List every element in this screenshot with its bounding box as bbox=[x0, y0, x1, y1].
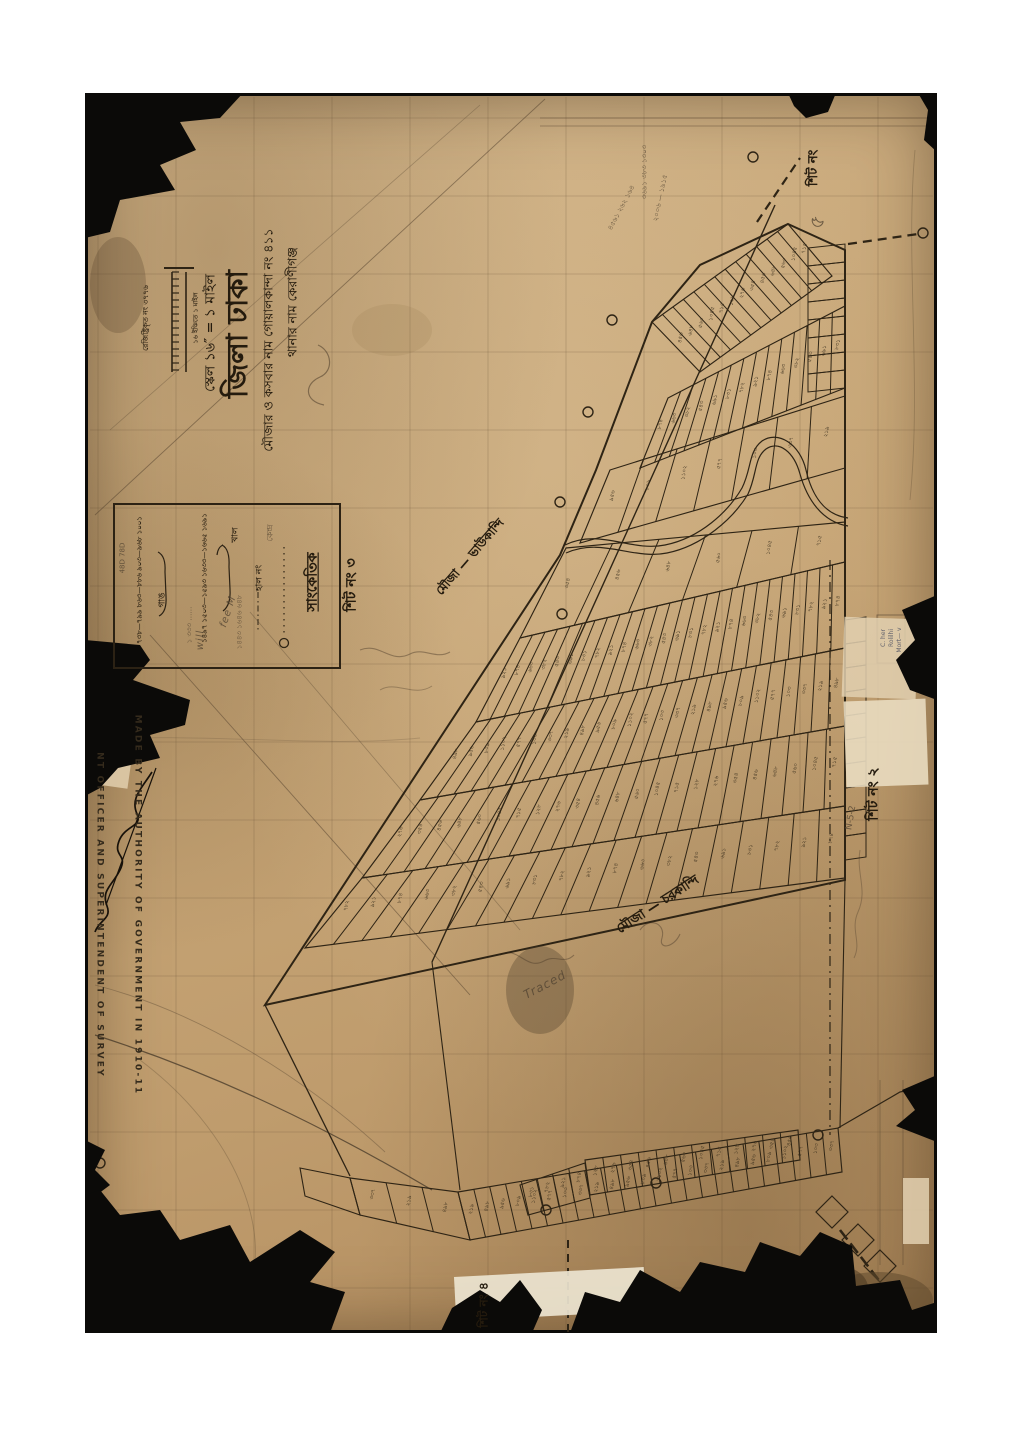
plot-number: ৮৩১ bbox=[531, 873, 539, 885]
plot-number: ১০৪৫ bbox=[654, 781, 662, 797]
plot-number: ৩৮২ bbox=[754, 612, 762, 624]
plot-number: ৩৫৪ bbox=[417, 823, 425, 835]
plot-number: ২৭৬ bbox=[713, 775, 721, 787]
plot-number: ৪৯৮ bbox=[484, 1200, 492, 1212]
plot-number: ৫৬০ bbox=[792, 762, 800, 774]
plot-strip bbox=[802, 571, 807, 657]
sheet-label-center: শিট নং ৩ bbox=[345, 558, 360, 611]
plot-number: ৫৬০ bbox=[780, 257, 788, 269]
tape-patch bbox=[903, 1178, 929, 1244]
pencil-scribble bbox=[854, 850, 862, 958]
plot-strip bbox=[746, 582, 758, 667]
plot-number: ১০৪৫ bbox=[698, 1145, 706, 1161]
plot-number: ৯২১ bbox=[752, 375, 760, 387]
survey-station-marker bbox=[555, 497, 565, 507]
plot-strip bbox=[574, 544, 612, 626]
plot-number: ৮৭৪ bbox=[576, 1171, 584, 1183]
plot-number: ৬৯১ bbox=[781, 606, 789, 618]
plot-number: ৮৩১ bbox=[747, 843, 755, 855]
plot-number: ৭১৫ bbox=[515, 807, 523, 819]
plot-number: ৭৮২ bbox=[774, 840, 782, 852]
map-canvas: ৪৫৬৬৪৮৫৬০১০৪৫৭১৫১২৮২৭৬৩৫৪৪৫৬৬৪৮৫৬০১০৪৫৭১… bbox=[0, 0, 1024, 1447]
plot-strip bbox=[761, 739, 771, 819]
plot-number: ৫৬০ bbox=[698, 317, 706, 329]
plot-strip bbox=[788, 814, 794, 886]
plot-strip bbox=[772, 339, 782, 417]
plot-number: ৭১৫ bbox=[718, 302, 726, 314]
plot-number: ২১৯ bbox=[719, 1159, 727, 1171]
plot-number: ১২৮ bbox=[733, 1143, 741, 1155]
plot-number: ৭১৫ bbox=[673, 781, 681, 793]
boundary-line bbox=[840, 880, 845, 1128]
plot-number: ৬৯১ bbox=[711, 394, 719, 406]
plot-number: ৫৪৩ bbox=[661, 632, 669, 644]
legend-current-no-label: হাল নং bbox=[255, 565, 264, 591]
plot-strip bbox=[698, 749, 716, 828]
plot-number: ৮৭৪ bbox=[828, 832, 836, 844]
plot-number: ১০৩ bbox=[813, 1142, 821, 1154]
plot-strip bbox=[474, 1189, 486, 1237]
plot-number: ১১০২ bbox=[627, 712, 635, 728]
plot-number: ৯৫৬ bbox=[468, 745, 476, 757]
plot-strip bbox=[677, 752, 697, 831]
plot-strip bbox=[777, 660, 786, 738]
plot-number: ৩৫৪ bbox=[575, 797, 583, 809]
plot-number: ৮০৯ bbox=[611, 718, 619, 730]
plot-strip bbox=[760, 663, 771, 741]
plot-number: ৮৭৪ bbox=[621, 641, 629, 653]
plot-strip bbox=[726, 669, 742, 747]
plot-strip bbox=[603, 1158, 608, 1193]
plot-number: ২৭৬ bbox=[610, 1162, 618, 1174]
plot-number: ৩৩৭ bbox=[703, 1162, 711, 1174]
plot-number: ৪৯৮ bbox=[579, 724, 587, 736]
plot-number: ১১০২ bbox=[500, 735, 508, 751]
plot-number: ৪৫৬ bbox=[752, 769, 760, 781]
plot-number: ৪৯৮ bbox=[442, 1201, 450, 1213]
plot-strip bbox=[703, 825, 718, 896]
plot-number: ৮৩১ bbox=[725, 388, 733, 400]
stamp-line-1: MADE BY THE AUTHORITY OF GOVERNMENT IN 1… bbox=[132, 715, 141, 1096]
plot-strip bbox=[553, 1174, 560, 1207]
plot-number: ৮৩১ bbox=[688, 627, 696, 639]
crease-line bbox=[910, 150, 915, 500]
plot-number: ৮৭৪ bbox=[612, 862, 620, 874]
plot-strip bbox=[786, 332, 794, 411]
title-district: জিলা ঢাকা bbox=[222, 270, 252, 398]
pencil-legend-note-2: ১ ৩৩৩ …… bbox=[186, 607, 193, 644]
tape-patch bbox=[844, 699, 929, 788]
plot-number: ৫৭৭ bbox=[643, 712, 651, 724]
survey-station-marker bbox=[557, 609, 567, 619]
plot-strip bbox=[618, 459, 644, 532]
plot-number: ৯৫৬ bbox=[625, 1175, 633, 1187]
plot-number: ৮৭৪ bbox=[766, 369, 774, 381]
plot-number: ৯২১ bbox=[501, 667, 509, 679]
plot-strip bbox=[616, 1165, 625, 1211]
plot-number: ৩৫৪ bbox=[628, 1159, 636, 1171]
plot-number: ৮৭৪ bbox=[728, 618, 736, 630]
plot-number: ৯৫৬ bbox=[609, 490, 617, 502]
plot-strip bbox=[740, 742, 753, 822]
plot-number: ৭১৫ bbox=[716, 1146, 724, 1158]
plot-number: ৭১৫ bbox=[831, 756, 839, 768]
plot-number: ১০৪৫ bbox=[811, 756, 819, 772]
plot-number: ৮০৯ bbox=[645, 479, 653, 491]
plot-strip bbox=[774, 577, 782, 663]
plot-number: ৫৬০ bbox=[680, 1151, 688, 1163]
plot-number: ৭৮২ bbox=[343, 899, 351, 911]
legend-group-b-numbers: ১৪৯৭ ১৫০৩—১৫৯৩ ১৬৩৩—১৬৬৫ ১৬৯১ bbox=[201, 513, 208, 643]
plot-number: ১০৩ bbox=[531, 733, 539, 745]
plot-number: ৬৪৮ bbox=[665, 560, 673, 572]
sheet-label-bottom: শিট নং ৪ bbox=[478, 1282, 491, 1328]
plot-number: ৩৩৭ bbox=[674, 706, 682, 718]
pencil-calc-1: ৩৬৯১ ৩৮৩ ১৩০৩ bbox=[641, 145, 648, 199]
plot-strip bbox=[467, 784, 512, 862]
plot-number: ৬৯১ bbox=[567, 652, 575, 664]
plot-number: ১০৩ bbox=[658, 709, 666, 721]
plot-number: ৯২১ bbox=[801, 836, 809, 848]
plot-number: ৮৩১ bbox=[581, 650, 589, 662]
registration-note: রেজিষ্ট্রিকৃত নং ৩৭৭৬ bbox=[142, 285, 150, 351]
plot-number: ১০৪৫ bbox=[791, 246, 799, 262]
plot-number: ১০৩ bbox=[752, 447, 760, 459]
plot-number: ৩৮২ bbox=[541, 658, 549, 670]
plot-number: ৯৫৬ bbox=[722, 698, 730, 710]
plot-number: ৮৭৪ bbox=[397, 892, 405, 904]
plot-number: ৬৬৩ bbox=[741, 615, 749, 627]
stain bbox=[352, 304, 432, 356]
legend-title: সাংকেতিক bbox=[306, 552, 321, 611]
plot-number: ৪৫৬ bbox=[615, 569, 623, 581]
plot-strip bbox=[727, 1140, 730, 1172]
sheet-label-right: শিট নং ২ bbox=[867, 767, 882, 820]
plot-strip bbox=[803, 732, 808, 812]
plot-number: ৬৬৩ bbox=[424, 888, 432, 900]
plot-number: ১০৪৫ bbox=[766, 540, 774, 556]
survey-station-marker bbox=[748, 152, 758, 162]
plot-number: ২১৯ bbox=[468, 1203, 476, 1215]
plot-strip bbox=[561, 844, 591, 915]
pencil-cursive-1: will bbox=[196, 630, 207, 651]
plot-number: ৪৯৮ bbox=[734, 1156, 742, 1168]
plot-number: ৮০৯ bbox=[766, 1151, 774, 1163]
plot-number: ৫৬০ bbox=[634, 788, 642, 800]
plot-number: ৩৫৪ bbox=[732, 772, 740, 784]
plot-number: ৭৮২ bbox=[739, 381, 747, 393]
plot-number: ৪৯৮ bbox=[609, 1178, 617, 1190]
plot-number: ৫৪৩ bbox=[554, 655, 562, 667]
pencil-legend-note-3: 48D 78D bbox=[119, 543, 126, 574]
plot-strip bbox=[731, 821, 743, 893]
plot-strip bbox=[782, 736, 790, 816]
plot-strip bbox=[618, 836, 642, 907]
torn-edge bbox=[788, 93, 836, 118]
khal-line bbox=[565, 437, 848, 546]
plot-number: ৭৮২ bbox=[558, 870, 566, 882]
plot-number: ৫৪৩ bbox=[478, 881, 486, 893]
plot-strip bbox=[817, 568, 820, 654]
plot-number: ১২৮ bbox=[535, 804, 543, 816]
plot-number: ৯৫৬ bbox=[750, 1153, 758, 1165]
plot-number: ২৭৬ bbox=[555, 800, 563, 812]
plot-number: ৫৭৭ bbox=[672, 1167, 680, 1179]
plot-number: ৫৭৭ bbox=[716, 458, 724, 470]
plot-number: ৫৭৭ bbox=[797, 1145, 805, 1157]
plot-number: ৯২১ bbox=[560, 1176, 568, 1188]
plot-number: ৪৫৬ bbox=[645, 1156, 653, 1168]
plot-number: ৬৬৩ bbox=[634, 638, 642, 650]
plot-number: ২১৯ bbox=[823, 426, 831, 438]
plot-number: ৩৩৭ bbox=[828, 1140, 836, 1152]
plot-strip bbox=[817, 810, 820, 882]
plot-number: ৩৩৭ bbox=[578, 1184, 586, 1196]
stamp-box-line-3: Mort— v bbox=[897, 627, 903, 652]
plot-strip bbox=[386, 1183, 397, 1224]
river-curve bbox=[95, 1035, 432, 1190]
plot-number: ৬৯১ bbox=[720, 847, 728, 859]
title-scale: স্কেল ১৬″ = ১ মাইল bbox=[204, 274, 219, 392]
legend-group-b-label: খাল bbox=[231, 527, 240, 542]
plot-strip bbox=[763, 1135, 766, 1166]
plot-number: ৩৩৭ bbox=[369, 1188, 377, 1200]
plot-number: ১২৮ bbox=[592, 1164, 600, 1176]
boundary-line bbox=[265, 1005, 350, 1176]
plot-diamond bbox=[816, 1196, 848, 1228]
plot-strip bbox=[683, 535, 706, 600]
plot-number: ৮৩১ bbox=[794, 603, 802, 615]
plot-number: ৫৭৭ bbox=[770, 689, 778, 701]
plot-number: ৩৮২ bbox=[648, 635, 656, 647]
plot-number: ৯৫৬ bbox=[595, 721, 603, 733]
plot-number: ৩৩৭ bbox=[801, 683, 809, 695]
survey-station-marker bbox=[607, 315, 617, 325]
plot-number: ৬৪৮ bbox=[663, 1154, 671, 1166]
plot-strip bbox=[454, 716, 506, 794]
plot-band bbox=[300, 1168, 360, 1215]
plot-number: ৮৭৪ bbox=[834, 595, 842, 607]
plot-number: ৬৬৩ bbox=[527, 661, 535, 673]
plot-number: ৩৮২ bbox=[684, 406, 692, 418]
plot-number: ৬৯১ bbox=[674, 629, 682, 641]
plot-number: ৪৫৬ bbox=[760, 272, 768, 284]
plot-number: ২৭৬ bbox=[751, 1140, 759, 1152]
plot-strip bbox=[760, 817, 769, 889]
plot-number: ১১০২ bbox=[754, 688, 762, 704]
torn-edge bbox=[85, 1190, 345, 1333]
plot-number: ৫৬০ bbox=[476, 813, 484, 825]
stamp-box-line-2: Rolilhi bbox=[889, 629, 895, 647]
plot-number: ৫৪৩ bbox=[698, 400, 706, 412]
scale-bar-note: ১৬ ইঞ্চিতে ১ মাইল bbox=[193, 293, 200, 344]
plot-number: ২১৯ bbox=[563, 727, 571, 739]
plot-strip bbox=[775, 1139, 780, 1184]
plot-strip bbox=[769, 417, 778, 489]
plot-number: ৯২১ bbox=[821, 598, 829, 610]
plot-strip bbox=[806, 1133, 811, 1177]
plot-number: ৪৯৮ bbox=[452, 748, 460, 760]
plot-strip bbox=[757, 345, 769, 422]
plot-number: ৫৭৭ bbox=[516, 736, 524, 748]
plot-number: ৬৪৮ bbox=[456, 816, 464, 828]
plot-number: ৯২১ bbox=[370, 896, 378, 908]
plot-number: ২১৯ bbox=[817, 680, 825, 692]
plot-number: ৪৯৮ bbox=[833, 677, 841, 689]
plot-number: ১০৩ bbox=[785, 686, 793, 698]
plot-band bbox=[458, 1128, 842, 1240]
survey-station-marker bbox=[918, 228, 928, 238]
plot-number: ৮৭৪ bbox=[657, 418, 665, 430]
plot-strip bbox=[709, 1143, 712, 1175]
title-thana: থানার নাম কেরাণীগঞ্জ bbox=[285, 247, 298, 357]
plot-number: ৩৮২ bbox=[666, 855, 674, 867]
legend-station-label: কেন্দ্র bbox=[266, 524, 275, 541]
plot-strip bbox=[788, 574, 795, 660]
plot-number: ৩৮২ bbox=[451, 885, 459, 897]
plot-number: ২১৯ bbox=[690, 703, 698, 715]
plot-strip bbox=[719, 745, 734, 824]
plot-strip bbox=[731, 428, 744, 500]
plot-number: ৬৯১ bbox=[505, 877, 513, 889]
plot-number: ৮০৯ bbox=[484, 742, 492, 754]
plot-number: ২১৯ bbox=[593, 1181, 601, 1193]
plot-strip bbox=[490, 635, 532, 719]
plot-strip bbox=[811, 654, 815, 732]
plot-number: ৩৫৪ bbox=[749, 279, 757, 291]
plot-number: ৯২১ bbox=[714, 621, 722, 633]
plot-number: ১১০২ bbox=[680, 465, 688, 481]
plot-number: ৫৪৩ bbox=[768, 609, 776, 621]
plot-number: ১২৮ bbox=[729, 294, 737, 306]
plot-strip bbox=[383, 797, 438, 875]
legend-group-a-numbers: ৭৩৮—৭৯৯ ৮৬৩—৮৮৬ ৯০৩—৯৬৮ ১০০১ bbox=[136, 516, 143, 644]
plot-strip bbox=[333, 874, 387, 944]
plot-number: ২৭৬ bbox=[397, 826, 405, 838]
plot-small bbox=[808, 370, 845, 392]
pencil-scribble bbox=[380, 686, 432, 690]
plot-strip bbox=[569, 1169, 575, 1203]
plot-strip bbox=[519, 629, 558, 713]
torn-edge bbox=[918, 93, 937, 152]
dashed-boundary bbox=[848, 234, 918, 244]
plot-strip bbox=[490, 1187, 501, 1235]
pencil-scribble bbox=[640, 923, 680, 946]
plot-number: ১০৪৫ bbox=[708, 306, 716, 322]
plot-number: ৮৭৪ bbox=[514, 664, 522, 676]
plot-strip bbox=[816, 319, 820, 399]
plot-strip bbox=[506, 1184, 517, 1232]
plot-number: ৭১৫ bbox=[816, 535, 824, 547]
plot-number: ৯২১ bbox=[608, 644, 616, 656]
plot-strip bbox=[589, 840, 616, 911]
plot-number: ৬৪৮ bbox=[772, 765, 780, 777]
stamp-box-line-1: C. her bbox=[881, 629, 887, 647]
plot-number: ৬৪৮ bbox=[770, 264, 778, 276]
boundary-line bbox=[432, 962, 460, 1190]
plot-number: ৮৩১ bbox=[834, 338, 842, 350]
pencil-scribble bbox=[360, 648, 450, 656]
plot-number: ৯২১ bbox=[585, 866, 593, 878]
plot-number: ৬৬৩ bbox=[639, 858, 647, 870]
torn-edge bbox=[85, 93, 243, 238]
plot-number: ৫৪৩ bbox=[693, 851, 701, 863]
plot-number: ৪৫৬ bbox=[436, 819, 444, 831]
plot-strip bbox=[504, 632, 545, 716]
stamp-line-2: NT OFFICER AND SUPERINTENDENT OF SURVEY bbox=[94, 752, 103, 1078]
plot-number: ৪৫৬ bbox=[786, 1135, 794, 1147]
plot-strip bbox=[621, 1155, 626, 1189]
plot-number: ৬৪৮ bbox=[614, 791, 622, 803]
plot-number: ৪৯৮ bbox=[706, 700, 714, 712]
plot-number: ২৭৬ bbox=[739, 287, 747, 299]
stain bbox=[90, 237, 146, 333]
plot-number: ৮০৯ bbox=[515, 1195, 523, 1207]
sheet-label-top-right: শিট নং bbox=[807, 150, 821, 186]
plot-band bbox=[305, 806, 845, 948]
plot-number: ৩৫৪ bbox=[564, 577, 572, 589]
signature-underline bbox=[106, 768, 156, 905]
plot-strip bbox=[824, 729, 827, 809]
plot-number: ৯৫৬ bbox=[499, 1197, 507, 1209]
scanned-map-page: { "title_block": { "thana_line": "থানার … bbox=[0, 0, 1024, 1447]
plot-number: ৪৫৬ bbox=[594, 794, 602, 806]
plot-number: ২১৯ bbox=[406, 1195, 414, 1207]
plot-strip bbox=[760, 580, 770, 666]
plot-number: ৭৮২ bbox=[594, 647, 602, 659]
plot-strip bbox=[831, 565, 833, 651]
title-mouza: মৌজার ও কসবার নাম গোয়ালকান্দা নং ৪১১ bbox=[261, 228, 274, 451]
plot-strip bbox=[807, 407, 811, 479]
plot-number: ৮০৯ bbox=[738, 695, 746, 707]
plot-number: ৭৮২ bbox=[808, 601, 816, 613]
plot-strip bbox=[801, 326, 807, 405]
plot-number: ৭৮২ bbox=[701, 624, 709, 636]
plot-small bbox=[845, 833, 866, 860]
plot-number: ৬৬৩ bbox=[780, 363, 788, 375]
plot-strip bbox=[791, 526, 799, 574]
plot-number: ৩৩৭ bbox=[547, 730, 555, 742]
plot-strip bbox=[422, 1187, 433, 1231]
plot-strip bbox=[505, 707, 550, 785]
plot-band bbox=[580, 396, 845, 543]
legend-group-a-label: গাঙ bbox=[158, 592, 167, 607]
plot-strip bbox=[694, 438, 711, 511]
plot-number: ১০৪৫ bbox=[496, 806, 504, 822]
plot-number: ৪৫৬ bbox=[677, 332, 685, 344]
plot-number: ৬৪৮ bbox=[688, 324, 696, 336]
plot-strip bbox=[743, 666, 756, 744]
plot-number: ১২৮ bbox=[693, 778, 701, 790]
plot-strip bbox=[737, 531, 752, 588]
pencil-scribble bbox=[308, 345, 329, 405]
plot-strip bbox=[471, 713, 520, 791]
dashed-boundary bbox=[757, 158, 800, 222]
survey-station-marker bbox=[583, 407, 593, 417]
